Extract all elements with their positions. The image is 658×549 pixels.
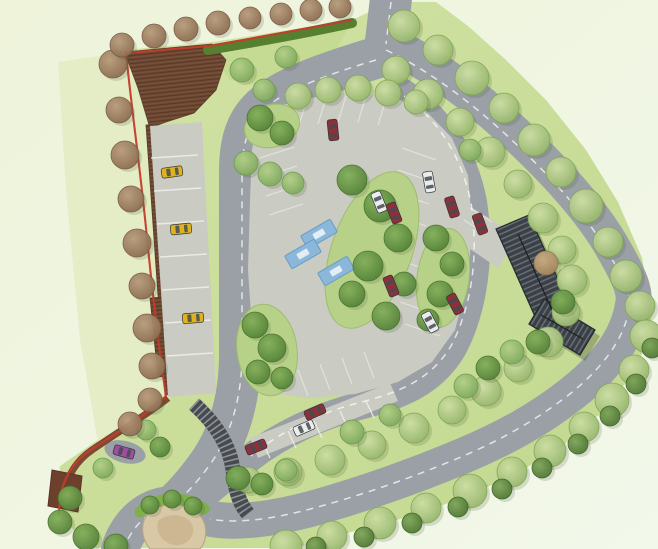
- brown-tree: [270, 3, 292, 25]
- car-body: [170, 223, 192, 235]
- light-tree: [593, 227, 623, 257]
- med-tree: [379, 404, 401, 426]
- dark-tree: [163, 490, 181, 508]
- light-tree: [375, 80, 401, 106]
- scallop-tree: [532, 458, 552, 478]
- scallop-tree: [642, 338, 658, 358]
- med-tree: [258, 162, 282, 186]
- light-tree: [489, 93, 519, 123]
- car-body: [182, 312, 204, 324]
- light-tree: [446, 108, 474, 136]
- dark-tree: [141, 496, 159, 514]
- parked-car-red: [327, 119, 339, 141]
- brown-tree: [142, 24, 166, 48]
- med-tree: [340, 420, 364, 444]
- car-windshield: [187, 314, 192, 322]
- brown-tree: [139, 353, 165, 379]
- light-tree: [423, 35, 453, 65]
- light-tree: [528, 203, 558, 233]
- light-tree: [569, 189, 603, 223]
- brown-tree: [123, 229, 151, 257]
- brown-tree: [300, 0, 322, 21]
- scallop-tree: [448, 497, 468, 517]
- light-tree: [315, 77, 341, 103]
- light-tree: [388, 10, 420, 42]
- dark-tree: [246, 360, 270, 384]
- med-tree: [93, 458, 113, 478]
- brown-tree: [118, 412, 142, 436]
- brown-tree: [110, 33, 134, 57]
- parked-car-yellow: [182, 312, 204, 324]
- med-tree: [275, 46, 297, 68]
- med-tree: [500, 340, 524, 364]
- car-body: [327, 119, 339, 141]
- dark-tree: [440, 252, 464, 276]
- dark-tree: [271, 367, 293, 389]
- dark-tree: [251, 473, 273, 495]
- light-tree: [345, 75, 371, 101]
- light-tree: [455, 61, 489, 95]
- scallop-tree: [354, 527, 374, 547]
- brown-tree: [111, 141, 139, 169]
- dark-tree: [270, 121, 294, 145]
- dark-tree: [384, 224, 412, 252]
- light-tree: [315, 445, 345, 475]
- light-tree: [438, 396, 466, 424]
- site-plan-page: [0, 0, 658, 549]
- scallop-tree: [492, 479, 512, 499]
- dark-tree: [58, 486, 82, 510]
- dark-tree: [339, 281, 365, 307]
- dark-tree: [526, 330, 550, 354]
- light-tree: [504, 170, 532, 198]
- dark-tree: [353, 251, 383, 281]
- light-tree: [546, 157, 576, 187]
- car-windshield: [329, 124, 337, 129]
- dark-tree: [258, 334, 286, 362]
- dark-tree: [150, 437, 170, 457]
- dark-tree: [226, 466, 250, 490]
- scallop-tree: [402, 513, 422, 533]
- brown-tree: [129, 273, 155, 299]
- scallop-tree: [600, 406, 620, 426]
- light-tree: [610, 260, 642, 292]
- dark-tree: [73, 524, 99, 549]
- dark-tree: [337, 165, 367, 195]
- dark-tree: [48, 510, 72, 534]
- brown-tree: [174, 17, 198, 41]
- light-tree: [518, 124, 550, 156]
- scallop-tree: [568, 434, 588, 454]
- dark-tree: [184, 497, 202, 515]
- med-tree: [454, 374, 478, 398]
- brown-tree: [206, 11, 230, 35]
- car-windshield: [175, 225, 180, 233]
- dark-tree: [476, 356, 500, 380]
- brown-tree: [118, 186, 144, 212]
- med-tree: [282, 172, 304, 194]
- brown-tree: [329, 0, 351, 18]
- med-tree: [234, 151, 258, 175]
- brown-tree: [138, 388, 162, 412]
- dark-tree: [423, 225, 449, 251]
- med-tree: [230, 58, 254, 82]
- dark-tree: [242, 312, 268, 338]
- med-tree: [459, 139, 481, 161]
- parked-car-yellow: [170, 223, 192, 235]
- car-rear-window: [196, 314, 200, 322]
- tan-tree: [534, 251, 558, 275]
- brown-tree: [239, 7, 261, 29]
- light-tree: [404, 90, 428, 114]
- light-tree: [625, 291, 655, 321]
- brown-tree: [106, 97, 132, 123]
- dark-tree: [247, 105, 273, 131]
- scallop-tree: [626, 374, 646, 394]
- site-plan-drawing: [0, 0, 658, 549]
- brown-tree: [133, 314, 161, 342]
- dark-tree: [551, 290, 575, 314]
- light-tree: [285, 83, 311, 109]
- med-tree: [275, 459, 297, 481]
- dark-tree: [372, 302, 400, 330]
- med-tree: [253, 79, 275, 101]
